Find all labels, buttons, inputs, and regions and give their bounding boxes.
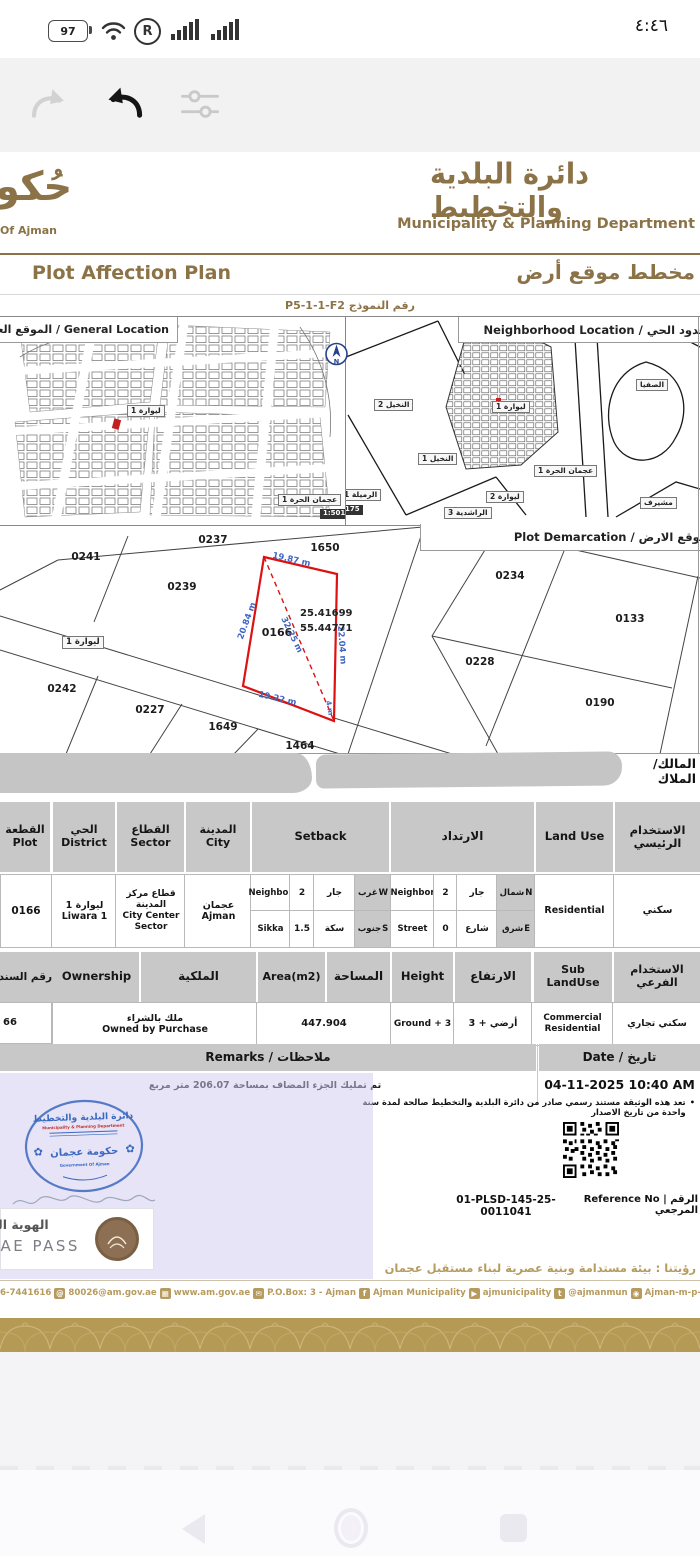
map-tag-rumailah1: الرميلة 1 — [346, 489, 381, 501]
th-area-en: Area(m2) — [258, 952, 325, 1002]
map-tag-safia: الصفيا — [636, 379, 668, 391]
navigation-bar — [0, 1470, 700, 1556]
value: شارع — [465, 924, 489, 935]
header-divider — [0, 253, 700, 255]
vision-statement: رؤيتنا : بيئة مستدامة وبنية عصرية لبناء … — [370, 1261, 696, 1275]
value: 0 — [442, 924, 448, 935]
uae-pass-logo — [95, 1217, 139, 1261]
th-setback-ar-label: الارتداد — [442, 830, 484, 844]
map-scale-general: 1:501 — [320, 509, 345, 519]
td-height-ar: أرضي + 3 — [453, 1002, 533, 1046]
compass-icon: N — [324, 341, 349, 369]
th-setback-en: Setback — [252, 802, 389, 872]
footer-divider — [0, 1280, 700, 1281]
label: الملكية — [178, 970, 219, 984]
owner-name-redacted — [0, 753, 312, 793]
adjustments-button[interactable] — [178, 82, 222, 126]
value-line1: Commercial — [543, 1013, 601, 1024]
stamp-gov-en: Government Of Ajman — [60, 1161, 110, 1168]
plot-coordinate-lat: 25.41699 — [300, 608, 353, 619]
official-stamp: دائرة البلدية والتخطيط Municipality & Pl… — [20, 1096, 147, 1196]
th-height-en: Height — [392, 952, 453, 1002]
td-setback-w-dir: غربW — [354, 874, 392, 912]
td-setback-w-type-ar: جار — [313, 874, 356, 912]
parcel-number: 0133 — [608, 613, 652, 625]
parcel-number: 1464 — [278, 740, 322, 752]
td-setback-n-type-ar: جار — [456, 874, 498, 912]
wifi-icon — [100, 18, 127, 43]
document-title-arabic: مخطط موقع أرض — [460, 260, 695, 284]
contact-pobox: P.O.Box: 3 - Ajman — [267, 1288, 356, 1298]
label: الارتفاع — [470, 970, 516, 984]
value: سكني — [643, 905, 673, 917]
facebook-icon: f — [359, 1288, 370, 1299]
value: 2 — [299, 888, 305, 899]
nav-back-button[interactable] — [182, 1514, 205, 1544]
owner-name-redacted — [316, 751, 622, 788]
government-logo: حُكومة — [0, 164, 74, 222]
map-tag-freezone1: عجمان الحرة 1 — [534, 465, 597, 477]
value-line2: Residential — [545, 1024, 601, 1035]
neighborhood-map: النخيل 2 النخيل 1 الرميلة 1 ليوارة 1 ليو… — [346, 317, 700, 525]
th-city: المدينة City — [186, 802, 250, 872]
label: Sub LandUse — [534, 964, 612, 989]
td-deed-no: 66 — [0, 1002, 52, 1044]
label: Ownership — [62, 970, 131, 983]
th-deed-no: رقم السند — [0, 952, 56, 1002]
battery-icon: 97 — [48, 20, 88, 42]
decorative-border-band — [0, 1318, 700, 1352]
remarks-divider — [537, 1044, 538, 1104]
plot-coordinate-lng: 55.44771 — [300, 623, 353, 634]
sliders-icon — [178, 82, 222, 126]
th-plot-en: Plot — [13, 837, 38, 850]
youtube-icon: ▶ — [469, 1288, 480, 1299]
parcel-number: 0227 — [128, 704, 172, 716]
td-setback-w-type-en: Neighbor — [250, 874, 291, 912]
demarcation-district-tag: ليوارة 1 — [62, 636, 104, 649]
th-main-use: الاستخدام الرئيسي — [615, 802, 700, 872]
parcel-number: 0239 — [160, 581, 204, 593]
td-sector-ar: قطاع مركز المدينة — [123, 889, 179, 912]
value: Neighbor — [248, 888, 292, 898]
editor-toolbar — [0, 58, 700, 153]
value: سكة — [325, 924, 345, 935]
td-plot-value: 0166 — [11, 905, 40, 918]
page-right-rule — [698, 316, 699, 754]
th-plot: القطعة Plot — [0, 802, 50, 872]
th-area-ar: المساحة — [327, 952, 390, 1002]
contact-instagram: Ajman-m-p-d — [645, 1288, 700, 1298]
td-setback-s-value: 1.5 — [289, 910, 315, 948]
td-setback-e-value: 0 — [433, 910, 458, 948]
th-sector-en: Sector — [130, 837, 170, 850]
th-district-en: District — [61, 837, 107, 850]
td-main-use: سكني — [613, 874, 700, 948]
td-ownership: ملك بالشراء Owned by Purchase — [52, 1002, 258, 1046]
value: جار — [327, 888, 342, 899]
td-sector-en: City Center Sector — [121, 911, 181, 934]
th-sector: القطاع Sector — [117, 802, 184, 872]
th-date: Date / تاريخ — [539, 1044, 700, 1071]
undo-icon — [100, 78, 148, 126]
th-city-en: City — [206, 837, 230, 850]
value: 447.904 — [301, 1018, 347, 1030]
government-logo-caption: Of Ajman — [0, 224, 80, 237]
th-ownership-ar: الملكية — [141, 952, 256, 1002]
th-height-ar: الارتفاع — [455, 952, 531, 1002]
title-divider — [0, 294, 700, 295]
td-district: ليوارة 1 Liwara 1 — [51, 874, 118, 948]
dir-ar: شرق — [502, 924, 523, 934]
map-tag-rashidiya3: الراشدية 3 — [444, 507, 492, 519]
dir-en: S — [382, 924, 388, 934]
td-height-en: Ground + 3 — [390, 1002, 455, 1046]
td-setback-n-type-en: Neighbor — [390, 874, 435, 912]
td-sub-use-ar: سكني تجاري — [612, 1002, 700, 1046]
contact-email: 80026@am.gov.ae — [68, 1288, 156, 1298]
td-district-ar: ليوارة 1 — [66, 900, 104, 911]
document-page: حُكومة Of Ajman دائرة البلدية والتخطيط M… — [0, 152, 700, 1352]
plot-demarcation-label: Plot Demarcation / موقع الارض — [420, 524, 700, 551]
date-header-label: Date / تاريخ — [583, 1051, 657, 1065]
reference-number-label: Reference No | الرقم المرجعي — [572, 1194, 698, 1216]
label: الاستخدام الفرعي — [626, 964, 688, 989]
stamp-gov-ar: حكومة عجمان — [50, 1146, 118, 1159]
map-scale-neighborhood: 175 — [346, 505, 363, 515]
map-tag-liwara2: ليوارة 2 — [486, 491, 524, 503]
dir-ar: شمال — [500, 888, 525, 898]
th-land-use: Land Use — [536, 802, 613, 872]
value-ar: ملك بالشراء — [127, 1013, 183, 1024]
dir-ar: جنوب — [358, 924, 381, 934]
reference-number-value: 01-PLSD-145-25-0011041 — [440, 1194, 572, 1218]
validity-note: • تعد هذه الوثيقة مستند رسمي صادر من دائ… — [355, 1098, 695, 1118]
contact-phone: 06-7441616 — [0, 1288, 51, 1298]
mail-icon: ✉ — [253, 1288, 264, 1299]
dir-en: E — [524, 924, 530, 934]
general-location-label: General Location / الموقع العام — [0, 317, 178, 343]
th-sub-use-en: Sub LandUse — [534, 952, 612, 1002]
parcel-number: 0241 — [64, 551, 108, 563]
note-text: تعد هذه الوثيقة مستند رسمي صادر من دائرة… — [355, 1098, 686, 1118]
th-sub-use-ar: الاستخدام الفرعي — [614, 952, 700, 1002]
twitter-icon: t — [554, 1288, 565, 1299]
general-location-map: ليوارة 1 عجمان الحرة 1 1:501 — [0, 317, 345, 525]
stamp-medallion-left: ✿ — [33, 1145, 43, 1158]
td-plot: 0166 — [0, 874, 52, 948]
th-district: الحي District — [53, 802, 115, 872]
th-land-use-label: Land Use — [545, 830, 605, 843]
remarks-header-label: Remarks / ملاحظات — [205, 1051, 330, 1065]
th-setback-ar: الارتداد — [391, 802, 534, 872]
td-setback-s-dir: جنوبS — [354, 910, 392, 948]
value-en: Owned by Purchase — [102, 1024, 208, 1035]
nav-recents-button[interactable] — [500, 1514, 527, 1542]
td-sector: قطاع مركز المدينة City Center Sector — [115, 874, 187, 948]
contact-twitter: @ajmanmun — [568, 1288, 627, 1298]
value: Sikka — [257, 924, 283, 934]
instagram-icon: ◉ — [631, 1288, 642, 1299]
td-city-en: Ajman — [202, 911, 236, 922]
map-tag-liwara1: ليوارة 1 — [492, 401, 530, 413]
nav-home-inner — [341, 1515, 361, 1541]
undo-button[interactable] — [100, 78, 148, 126]
parcel-number: 0237 — [191, 534, 235, 546]
label: Height — [401, 970, 444, 983]
label: المساحة — [334, 970, 383, 984]
uae-pass-card: الهوية الرقمية UAE PASS — [0, 1208, 154, 1270]
signal-bars-icon-2 — [210, 18, 242, 42]
th-remarks: Remarks / ملاحظات — [0, 1044, 536, 1071]
redo-icon — [26, 80, 72, 126]
td-setback-e-type-en: Street — [390, 910, 435, 948]
map-tag-nakheel2: النخيل 2 — [374, 399, 413, 411]
map-tag-nakheel1: النخيل 1 — [418, 453, 457, 465]
status-bar: 97 R ٤:٤٦ — [0, 0, 700, 58]
dir-en: N — [525, 888, 532, 898]
td-area: 447.904 — [256, 1002, 392, 1046]
uae-pass-title-english: UAE PASS — [0, 1237, 107, 1255]
clock-time: ٤:٤٦ — [588, 16, 668, 42]
department-name-english: Municipality & Planning Department — [380, 216, 695, 232]
department-name-arabic: دائرة البلدية والتخطيط — [430, 158, 695, 225]
value: Residential — [544, 905, 604, 916]
parcel-number: 0190 — [578, 697, 622, 709]
neighborhood-location-label: Neighborhood Location / حدود الحي — [458, 317, 700, 343]
document-title-english: Plot Affection Plan — [32, 262, 312, 284]
dir-ar: غرب — [358, 888, 378, 898]
td-setback-n-value: 2 — [433, 874, 458, 912]
td-setback-e-type-ar: شارع — [456, 910, 498, 948]
th-deed-label: رقم السند — [0, 971, 52, 983]
date-value: 04-11-2025 10:40 AM — [539, 1077, 700, 1092]
th-ownership-en: Ownership — [54, 952, 139, 1002]
owner-label: المالك/الملاك — [620, 756, 696, 786]
at-icon: @ — [54, 1288, 65, 1299]
value: Street — [398, 924, 428, 934]
parcel-number: 1649 — [201, 721, 245, 733]
parcel-number: 0242 — [40, 683, 84, 695]
th-main-use-label: الاستخدام الرئيسي — [626, 824, 690, 850]
th-setback-en-label: Setback — [294, 830, 346, 843]
td-setback-s-type-en: Sikka — [250, 910, 291, 948]
signal-bars-icon-1 — [170, 18, 202, 42]
map-tag-district: ليوارة 1 — [127, 405, 165, 417]
maps-section: ليوارة 1 عجمان الحرة 1 1:501 — [0, 316, 700, 526]
qr-code — [563, 1122, 619, 1178]
fax-icon: ▦ — [160, 1288, 171, 1299]
map-tag-mushairef: مشيرف — [640, 497, 677, 509]
compass-letter: N — [334, 358, 339, 366]
td-setback-w-value: 2 — [289, 874, 315, 912]
uae-pass-title-arabic: الهوية الرقمية — [0, 1217, 96, 1232]
td-district-en: Liwara 1 — [62, 911, 108, 922]
note-bullet: • — [690, 1098, 695, 1118]
roaming-icon: R — [134, 18, 161, 45]
map-tag-freezone: عجمان الحرة 1 — [278, 494, 341, 506]
redo-button[interactable] — [26, 80, 72, 126]
nav-home-button[interactable] — [334, 1508, 368, 1548]
td-setback-e-dir: شرقE — [496, 910, 536, 948]
value: Neighbor — [390, 888, 434, 898]
contact-youtube: ajmunicipality — [483, 1288, 551, 1298]
form-number: رقم النموذج P5-1-1-F2 — [200, 299, 500, 312]
value: سكني تجاري — [627, 1018, 687, 1029]
td-city: عجمان Ajman — [184, 874, 253, 948]
value: 66 — [3, 1017, 17, 1029]
value: 1.5 — [294, 924, 310, 935]
plot-demarcation-map: 0237 1650 0241 0239 0166 0242 0227 1649 … — [0, 524, 700, 754]
contact-bar: 06-7441616 @ 80026@am.gov.ae ▦ www.am.go… — [0, 1285, 700, 1301]
battery-percent: 97 — [60, 25, 75, 38]
td-land-use: Residential — [534, 874, 615, 948]
parcel-number: 0228 — [458, 656, 502, 668]
td-sub-use-en: Commercial Residential — [531, 1002, 614, 1046]
dir-en: W — [379, 888, 388, 898]
td-setback-s-type-ar: سكة — [313, 910, 356, 948]
value: Ground + 3 — [394, 1019, 451, 1030]
battery-tip-icon — [89, 26, 92, 34]
td-setback-n-dir: شمالN — [496, 874, 536, 912]
td-city-ar: عجمان — [203, 900, 234, 911]
value: أرضي + 3 — [469, 1018, 518, 1029]
label: Area(m2) — [263, 971, 321, 984]
value: جار — [469, 888, 484, 899]
contact-facebook: Ajman Municipality — [373, 1288, 466, 1298]
parcel-number: 0234 — [488, 570, 532, 582]
value: 2 — [442, 888, 448, 899]
phone-screen: 97 R ٤:٤٦ — [0, 0, 700, 1556]
stamp-medallion-right: ✿ — [125, 1142, 135, 1155]
contact-website: www.am.gov.ae — [174, 1288, 250, 1298]
parcel-number: 1650 — [303, 542, 347, 554]
